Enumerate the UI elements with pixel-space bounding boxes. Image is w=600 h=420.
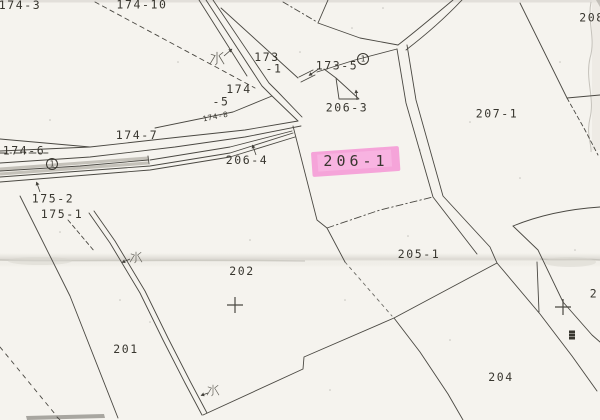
boundary-line: [20, 196, 118, 418]
road-edge: [397, 49, 477, 254]
cadastral-map: 174-3174-10173-1174-5174-8174-7174-6173-…: [0, 0, 600, 420]
label-arrow-175-2: [37, 182, 41, 192]
parcel-label: 174-6: [3, 144, 46, 158]
road-edge: [406, 0, 462, 50]
boundary-line: [221, 8, 298, 78]
parcel-label: 174-7: [116, 128, 159, 142]
road-lines: [0, 0, 600, 391]
boundary-line: [394, 318, 463, 420]
road-edge: [398, 0, 453, 45]
parcel-label-highlighted: 206-1: [323, 152, 388, 170]
parcel-label: 206-4: [226, 153, 269, 167]
road-kanji-mark: [569, 331, 575, 340]
boundary-line: [537, 262, 539, 312]
road-edge: [318, 23, 398, 45]
ink-speckles: [49, 7, 576, 391]
survey-cross-mark: [227, 297, 243, 313]
channel-line: [89, 213, 202, 415]
parcel-label: 206-3: [326, 101, 369, 115]
survey-cross-mark: [555, 299, 571, 315]
boundary-line: [513, 207, 600, 226]
road-edge: [513, 226, 600, 342]
svg-text:1: 1: [50, 160, 55, 169]
parcel-boundary-lines: [0, 0, 600, 420]
scan-top-edge: [0, 0, 600, 3]
parcel-label: 208: [579, 11, 600, 25]
boundary-line: [318, 0, 328, 23]
scan-bottom-streak: [26, 414, 105, 420]
label-arrow-206-3: [356, 90, 357, 100]
water-kanji-mark: [210, 52, 224, 65]
boundary-dashed: [0, 347, 60, 420]
boundary-dashdot: [283, 2, 317, 22]
parcel-label: 174: [226, 82, 252, 96]
parcel-labels: 174-3174-10173-1174-5174-8174-7174-6173-…: [0, 0, 600, 384]
water-arrow: [224, 49, 232, 56]
parcel-label: 204: [488, 370, 514, 384]
parcel-label: 202: [229, 264, 255, 278]
boundary-dashed: [345, 262, 392, 316]
parcel-label: 2: [590, 287, 599, 301]
parcel-label: 175-1: [41, 207, 84, 221]
channel-line: [94, 211, 207, 413]
annotation-arrows: [37, 49, 358, 396]
parcel-label: 175-2: [32, 192, 75, 206]
channel-line: [199, 0, 247, 76]
parcel-label: 174-3: [0, 0, 41, 12]
parcel-label: -1: [265, 62, 282, 76]
parcel-label: -5: [212, 95, 229, 109]
parcel-label: 174-10: [116, 0, 167, 12]
sliver-parcel-marks: [299, 70, 315, 82]
parcel-label: 207-1: [476, 107, 519, 121]
channel-line: [150, 131, 292, 160]
triangle-parcel-206-3: [324, 69, 359, 99]
boundary-dashed: [95, 2, 255, 88]
parcel-label: 173-5: [316, 59, 359, 73]
paper-artifacts: [0, 0, 600, 420]
svg-text:1: 1: [361, 55, 366, 64]
boundary-dashdot: [327, 197, 433, 228]
parcel-label: 174-8: [202, 110, 229, 124]
water-kanji-mark: [207, 385, 219, 396]
parcel-label: 205-1: [398, 247, 441, 261]
boundary-dashed: [68, 220, 95, 252]
paper-edge-wavy-line: [589, 2, 593, 152]
parcel-label: 201: [113, 342, 139, 356]
boundary-line: [203, 263, 497, 415]
boundary-line: [293, 126, 345, 262]
